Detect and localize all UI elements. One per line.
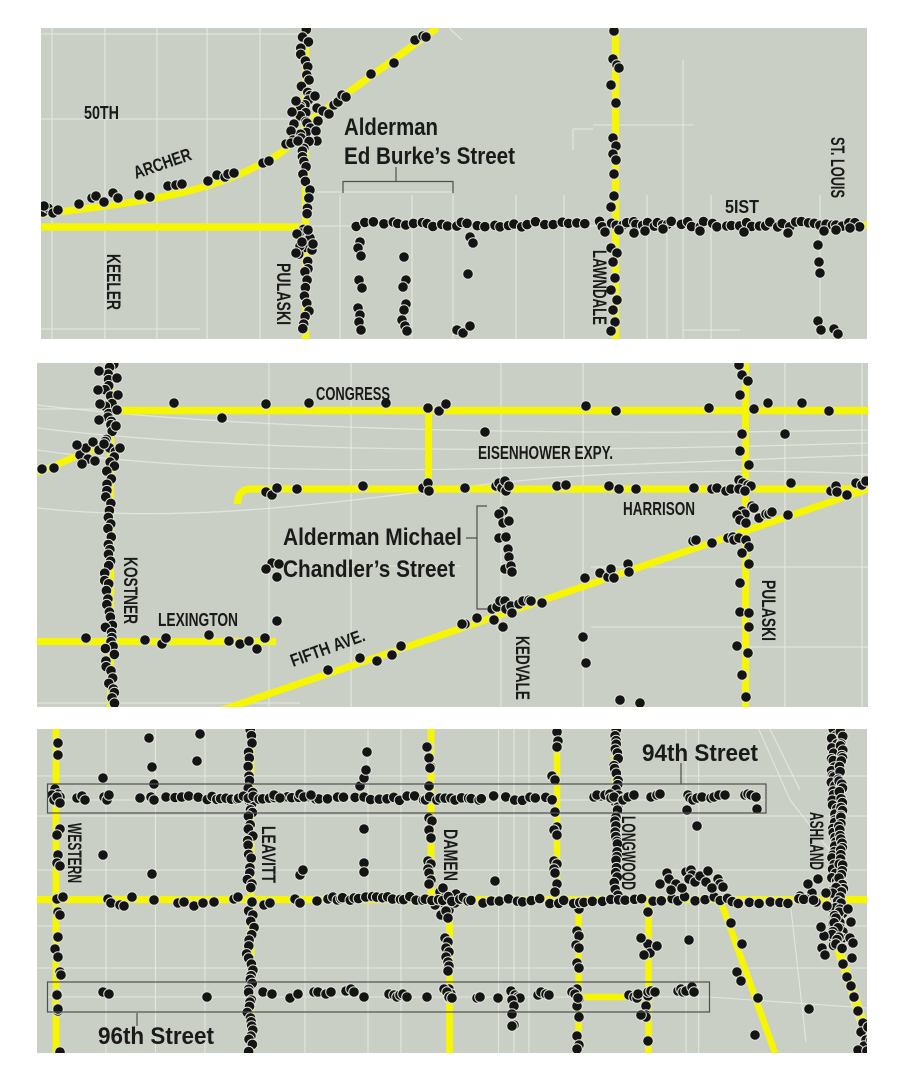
svg-text:ST. LOUIS: ST. LOUIS (826, 137, 847, 198)
svg-text:HARRISON: HARRISON (623, 499, 695, 519)
svg-text:ASHLAND: ASHLAND (805, 812, 826, 870)
svg-text:LEXINGTON: LEXINGTON (158, 610, 238, 630)
svg-text:PULASKI: PULASKI (757, 580, 778, 641)
svg-text:50TH: 50TH (84, 103, 119, 123)
svg-text:WESTERN: WESTERN (63, 823, 84, 883)
svg-text:CONGRESS: CONGRESS (316, 384, 390, 404)
svg-text:5IST: 5IST (725, 197, 759, 217)
svg-text:Chandler’s Street: Chandler’s Street (283, 556, 455, 583)
svg-text:94th Street: 94th Street (642, 740, 758, 767)
svg-text:Alderman: Alderman (344, 114, 438, 141)
svg-text:DAMEN: DAMEN (439, 829, 460, 881)
svg-text:EISENHOWER EXPY.: EISENHOWER EXPY. (478, 443, 613, 463)
svg-text:LEAVITT: LEAVITT (257, 826, 278, 883)
svg-text:KEDVALE: KEDVALE (511, 636, 532, 700)
svg-text:KOSTNER: KOSTNER (119, 557, 140, 624)
svg-text:KEELER: KEELER (102, 254, 123, 310)
svg-text:PULASKI: PULASKI (272, 263, 293, 325)
svg-text:LAWNDALE: LAWNDALE (588, 250, 609, 325)
svg-text:Ed Burke’s Street: Ed Burke’s Street (344, 143, 515, 170)
svg-text:LONGWOOD: LONGWOOD (617, 816, 638, 890)
svg-text:96th Street: 96th Street (98, 1023, 214, 1050)
svg-text:Alderman Michael: Alderman Michael (283, 524, 462, 551)
